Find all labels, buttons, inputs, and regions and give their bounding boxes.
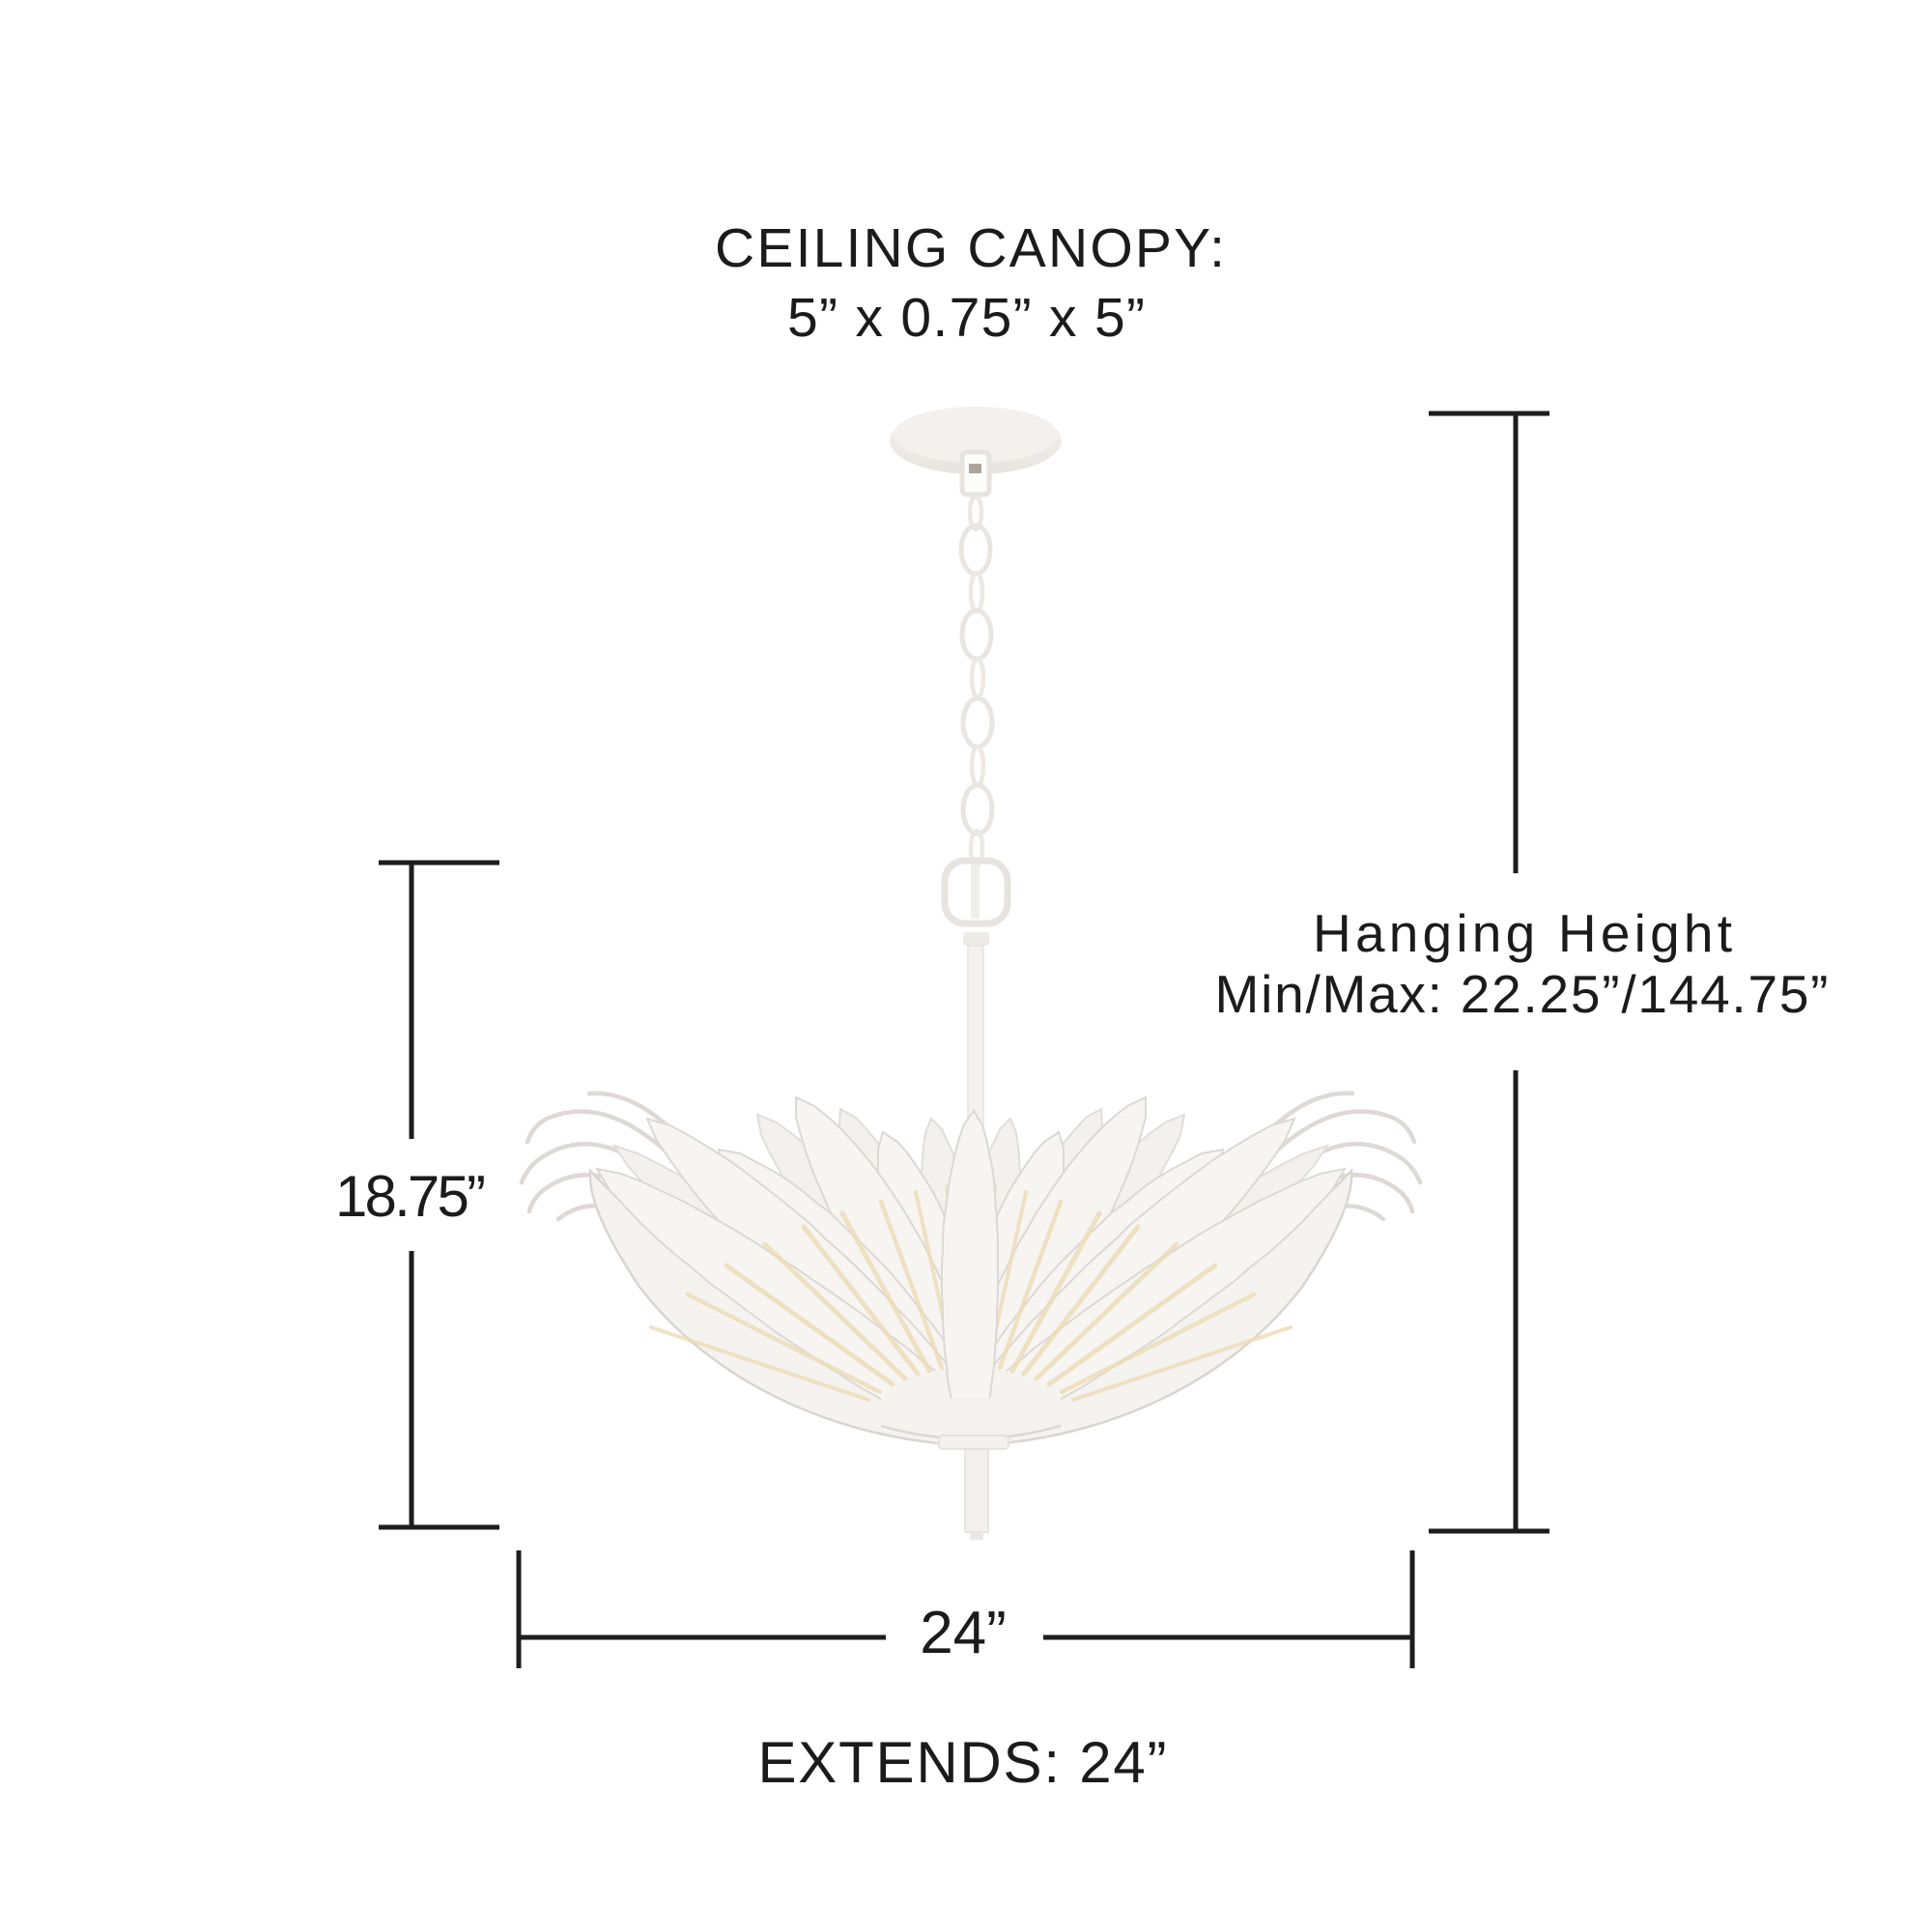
svg-text:EXTENDS: 24”: EXTENDS: 24” (758, 1730, 1167, 1795)
svg-text:18.75”: 18.75” (335, 1164, 486, 1229)
svg-text:Hanging Height: Hanging Height (1313, 903, 1732, 963)
svg-text:CEILING CANOPY:: CEILING CANOPY: (715, 217, 1225, 279)
svg-text:24”: 24” (920, 1600, 1007, 1666)
svg-text:5” x 0.75” x 5”: 5” x 0.75” x 5” (787, 287, 1145, 349)
